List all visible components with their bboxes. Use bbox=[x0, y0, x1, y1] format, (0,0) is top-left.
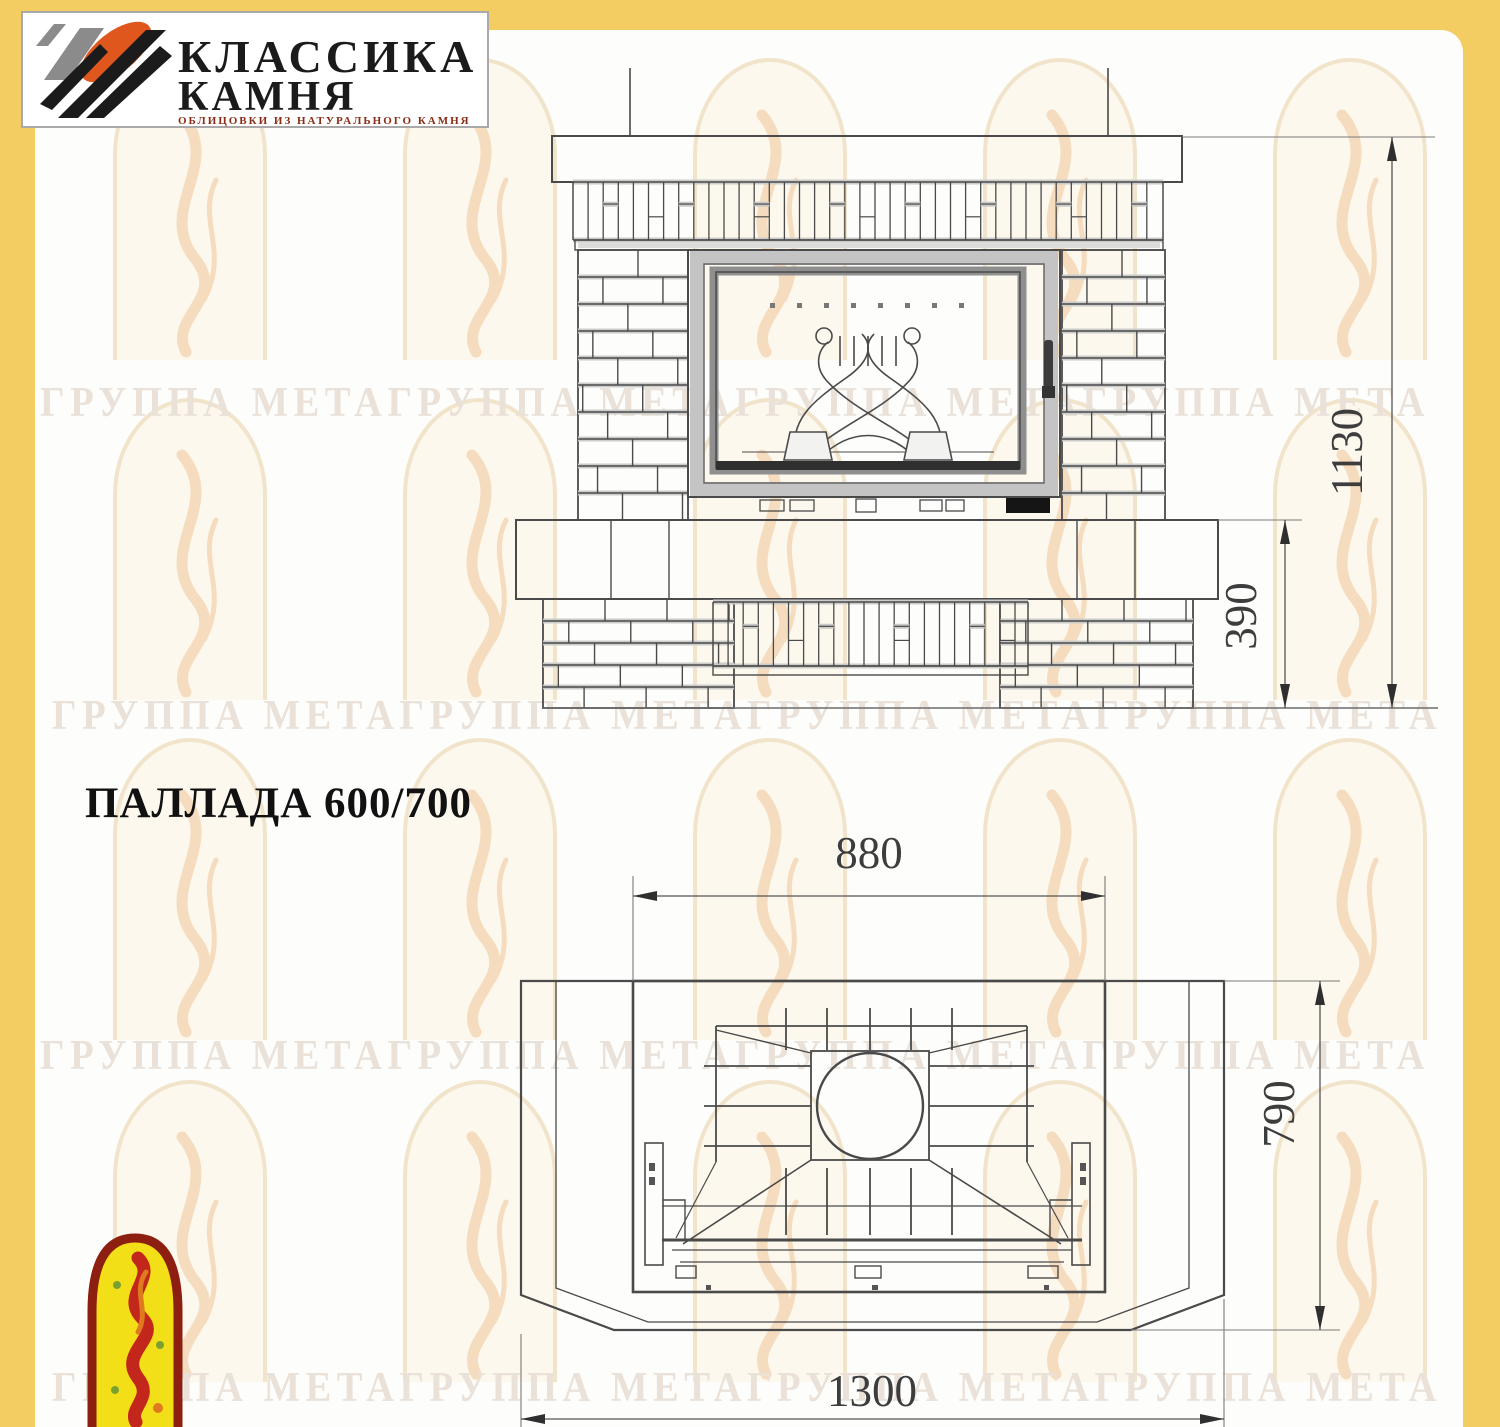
watermark-text-row: ГРУППА МЕТАГРУППА МЕТАГРУППА МЕТАГРУППА … bbox=[40, 1033, 1430, 1079]
dim-plan-platform-width: 880 bbox=[835, 828, 903, 878]
logo-title-line2: КАМНЯ bbox=[178, 74, 356, 120]
logo-tagline: ОБЛИЦОВКИ ИЗ НАТУРАЛЬНОГО КАМНЯ bbox=[178, 115, 471, 127]
watermark-text-row: ГРУППА МЕТАГРУППА МЕТАГРУППА МЕТАГРУППА … bbox=[52, 693, 1442, 739]
page-background: ГРУППА МЕТАГРУППА МЕТАГРУППА МЕТАГРУППА … bbox=[0, 0, 1500, 1427]
watermark-text-row: ГРУППА МЕТАГРУППА МЕТАГРУППА МЕТАГРУППА … bbox=[40, 380, 1430, 426]
dim-front-hearth-height: 390 bbox=[1216, 582, 1266, 650]
technical-drawing: ГРУППА МЕТАГРУППА МЕТАГРУППА МЕТАГРУППА … bbox=[0, 0, 1500, 1427]
dim-plan-overall-width: 1300 bbox=[827, 1366, 917, 1416]
product-title: ПАЛЛАДА 600/700 bbox=[85, 780, 472, 827]
watermark-text-row: ГРУППА МЕТАГРУППА МЕТАГРУППА МЕТАГРУППА … bbox=[52, 1365, 1442, 1411]
dim-front-total-height: 1130 bbox=[1322, 408, 1372, 496]
dim-plan-depth: 790 bbox=[1254, 1080, 1304, 1148]
